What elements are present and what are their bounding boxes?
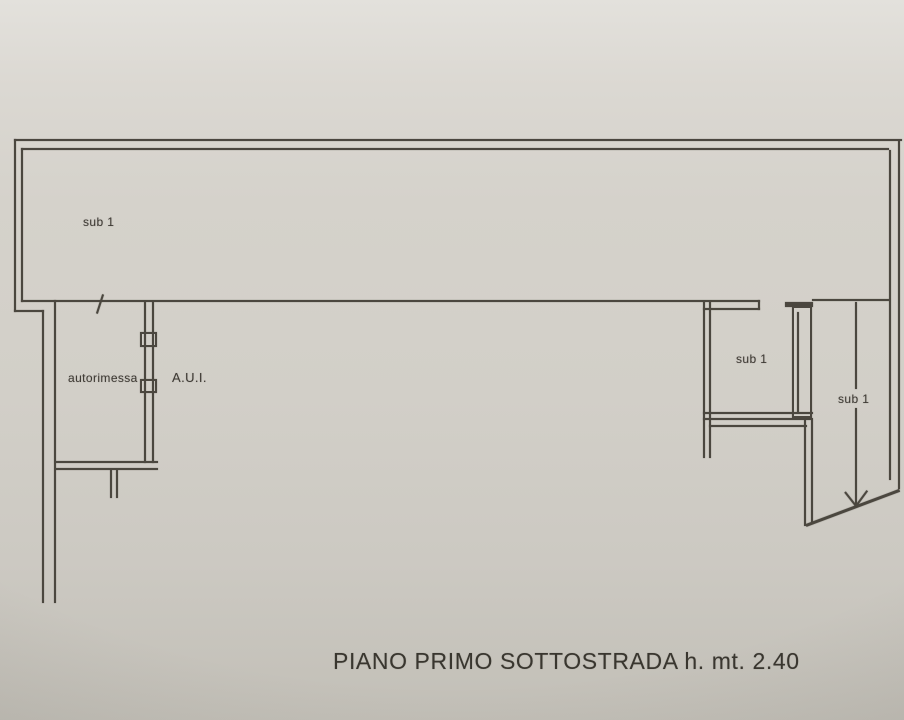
garage-bottom-wall-upper <box>55 461 158 463</box>
dividing-wall-right-part <box>812 299 890 301</box>
outer-wall-top <box>14 139 902 141</box>
ramp-diagonal-wall <box>805 489 900 527</box>
garage-stub-right <box>116 470 118 498</box>
floor-plan-scan: sub 1 autorimessa A.U.I. sub 1 sub 1 PIA… <box>0 0 904 720</box>
pilaster-inner-line <box>797 312 799 413</box>
door-swing-tick-icon <box>96 294 104 314</box>
aui-door-jamb-top <box>140 332 157 347</box>
main-hall-label: sub 1 <box>83 215 114 229</box>
inner-wall-left-lower <box>54 300 56 603</box>
room-right-wall-left-out <box>703 301 705 458</box>
outer-wall-left-step <box>14 310 44 312</box>
aui-label: A.U.I. <box>172 370 207 385</box>
down-arrow-icon <box>855 302 857 389</box>
inner-wall-left <box>21 148 23 302</box>
garage-label: autorimessa <box>68 371 138 385</box>
outer-wall-right <box>898 141 900 489</box>
small-room-label: sub 1 <box>736 352 767 366</box>
inner-wall-top <box>21 148 889 150</box>
room-right-lower-line <box>709 425 807 427</box>
ramp-wall-outer <box>811 420 813 524</box>
outer-wall-left-lower <box>42 310 44 603</box>
inner-wall-right <box>889 150 891 480</box>
room-right-top-lower-line <box>703 308 760 310</box>
plan-caption: PIANO PRIMO SOTTOSTRADA h. mt. 2.40 <box>333 648 800 675</box>
aui-door-jamb-low <box>140 379 157 393</box>
garage-bottom-wall-lower <box>55 468 158 470</box>
pilaster-body <box>792 306 812 418</box>
room-right-wall-left-in <box>709 301 711 458</box>
room-right-bottom-lower <box>703 418 813 420</box>
main-dividing-wall <box>21 300 760 302</box>
outer-wall-left <box>14 139 16 312</box>
ramp-wall-inner <box>804 420 806 526</box>
down-arrow-shaft-low <box>855 408 857 506</box>
garage-stub-left <box>110 470 112 498</box>
room-right-top-end-cap <box>758 300 760 310</box>
ramp-area-label: sub 1 <box>838 392 869 406</box>
